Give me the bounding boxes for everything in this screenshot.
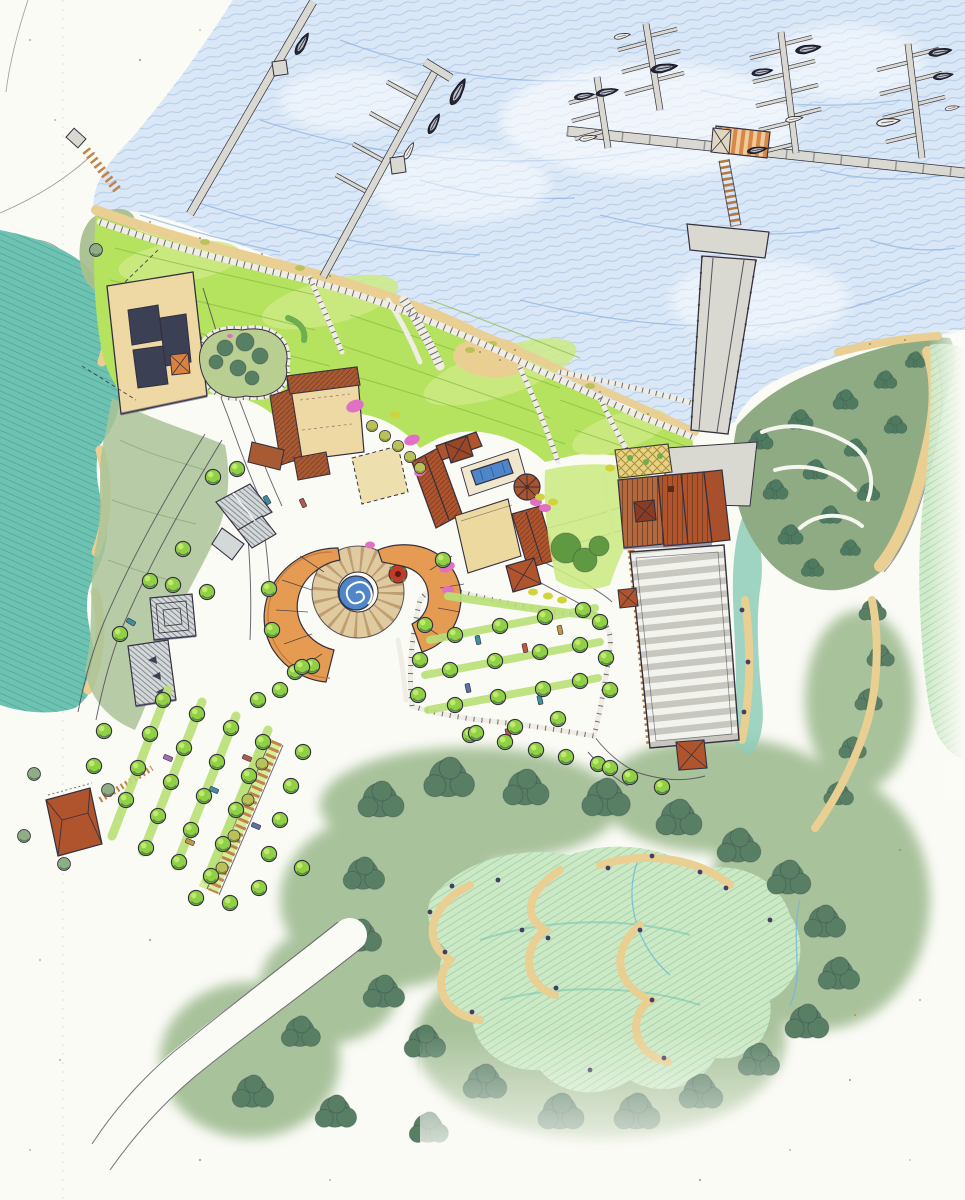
harbor-boathouse — [618, 470, 730, 548]
trellis-court — [615, 444, 672, 478]
site-plan-canvas — [0, 0, 965, 1200]
flower-bed-red — [389, 565, 407, 583]
site-plan-illustration — [0, 0, 965, 1200]
